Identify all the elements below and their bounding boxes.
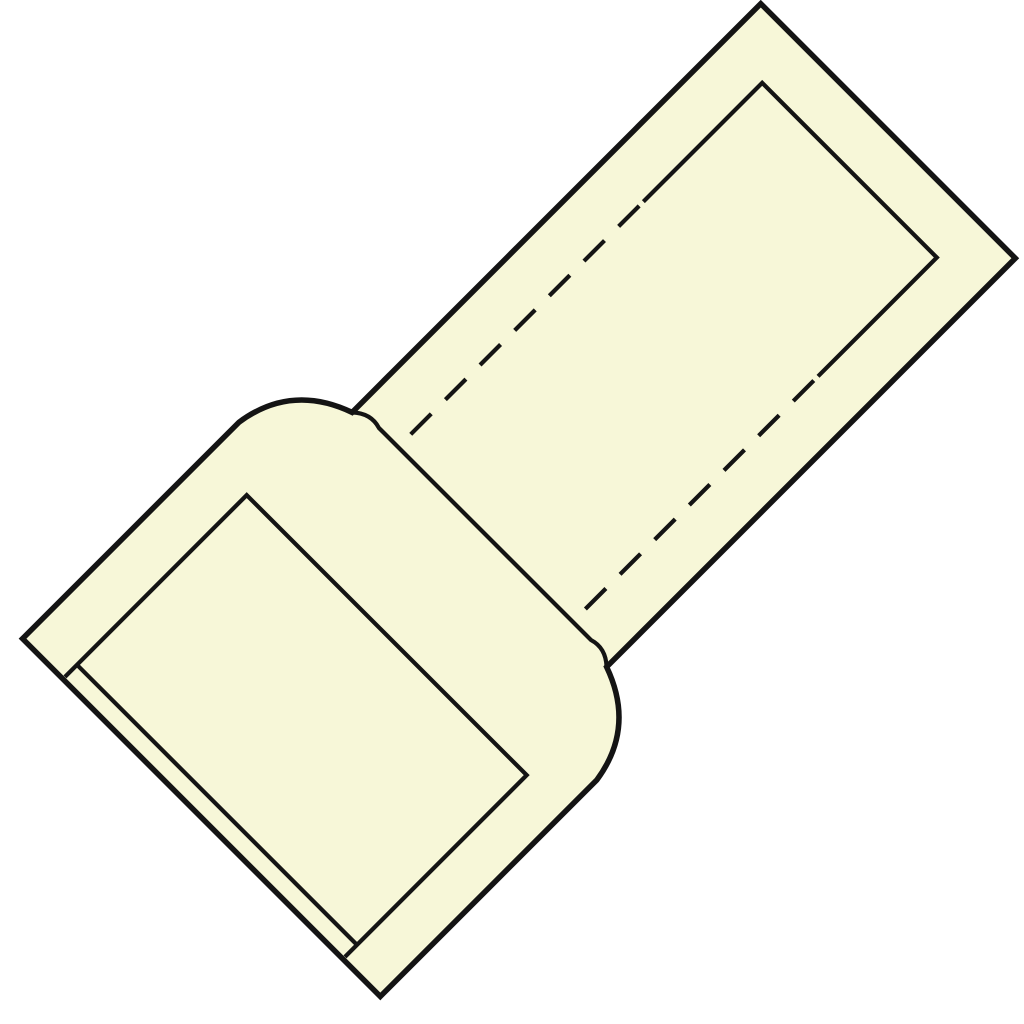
product-illustration-canvas (0, 0, 1024, 1024)
connector-silhouette (23, 0, 1024, 996)
butt-connector-illustration (0, 0, 1024, 1024)
